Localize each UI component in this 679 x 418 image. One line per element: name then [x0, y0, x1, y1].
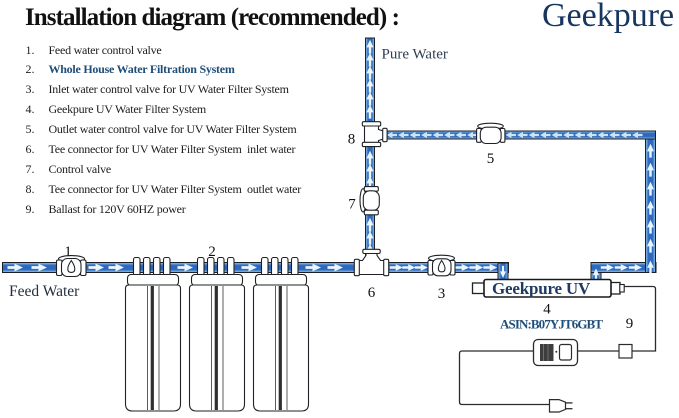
- svg-text:4: 4: [543, 302, 551, 318]
- svg-text:Feed Water: Feed Water: [9, 283, 80, 300]
- svg-text:1: 1: [64, 244, 72, 260]
- svg-text:7: 7: [348, 197, 356, 213]
- svg-text:3: 3: [438, 286, 446, 302]
- svg-text:6: 6: [368, 285, 376, 301]
- svg-text:9: 9: [626, 316, 634, 332]
- svg-text:Geekpure UV: Geekpure UV: [492, 279, 591, 298]
- svg-text:8: 8: [348, 132, 356, 148]
- svg-text:5: 5: [487, 151, 495, 167]
- svg-text:Pure Water: Pure Water: [382, 47, 448, 63]
- svg-text:ASIN:B07YJT6GBT: ASIN:B07YJT6GBT: [500, 317, 603, 332]
- svg-text:2: 2: [208, 244, 216, 260]
